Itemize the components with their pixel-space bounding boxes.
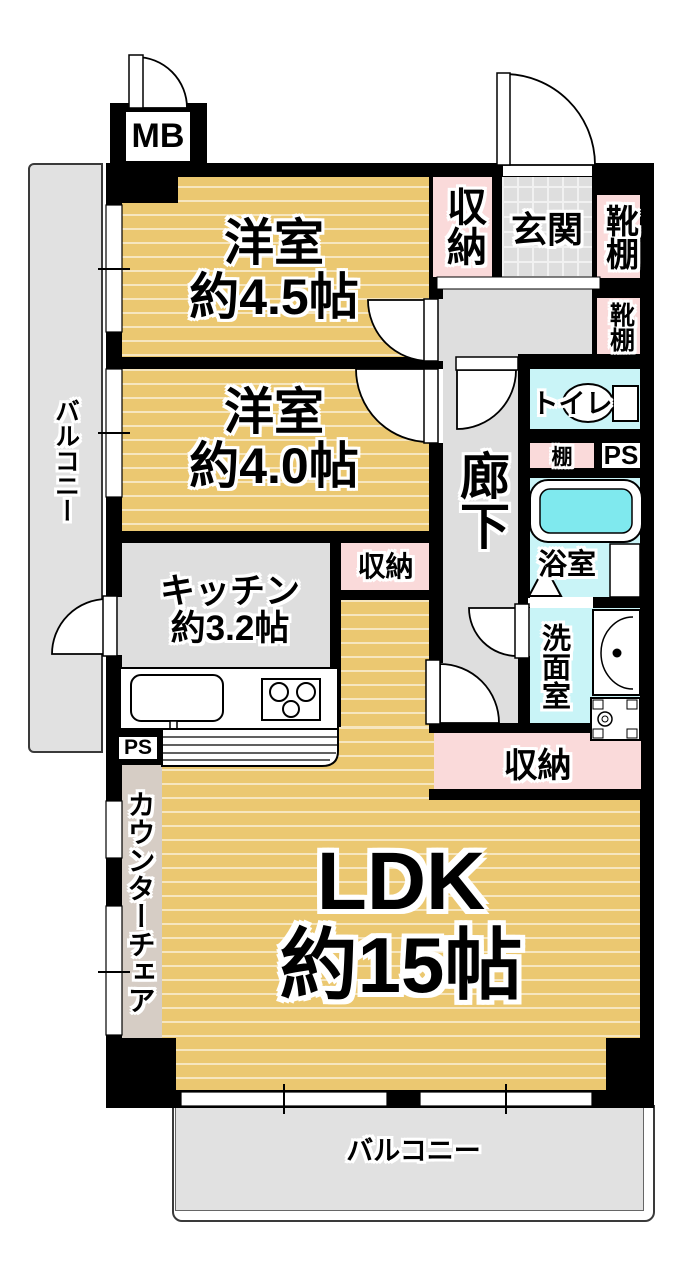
mb-box: MB	[126, 112, 190, 161]
closet-bottom-label: 収納	[434, 743, 641, 781]
washing-machine	[591, 698, 640, 740]
balcony-bottom-label: バルコニー	[172, 1128, 655, 1168]
toilet-door-arc	[457, 370, 516, 429]
ldk-size: 約15帖	[280, 925, 523, 1007]
kitchen-name: キッチン	[160, 574, 300, 611]
floor-plan: MB 洋室 約4.5帖 洋室 約4.0帖 キッチン 約3.2帖 LDK 約15帖…	[0, 0, 682, 1275]
hallway-label: 廊下	[448, 442, 514, 558]
entrance-door-arc	[504, 74, 595, 165]
bedroom2-size: 約4.0帖	[189, 439, 359, 493]
washbasin	[593, 610, 640, 695]
ldk-label: LDK 約15帖	[162, 833, 640, 1013]
washroom-door-arc	[469, 608, 517, 656]
ldk-door-arc	[440, 664, 499, 723]
shoe-shelf-2-label: 靴棚	[599, 300, 641, 353]
bedroom2-label: 洋室 約4.0帖	[118, 383, 430, 495]
balcony-left-label: バルコニー	[40, 383, 90, 538]
toilet-label: トイレ	[531, 386, 613, 416]
closet-top-label: 収納	[435, 180, 491, 272]
ldk-name: LDK	[317, 839, 486, 925]
bedroom1-label: 洋室 約4.5帖	[118, 212, 430, 327]
bedroom2-name: 洋室	[224, 385, 324, 439]
genkan-step	[437, 277, 600, 289]
bedroom1-size: 約4.5帖	[189, 270, 359, 324]
shoe-shelf-1-label: 靴棚	[599, 198, 641, 276]
mb-label: MB	[132, 117, 185, 156]
kitchen-label: キッチン 約3.2帖	[118, 575, 342, 647]
balcony-kitchen-door-arc	[52, 599, 107, 654]
kitchen-size: 約3.2帖	[171, 611, 290, 648]
ps-right-label: PS	[602, 443, 640, 468]
washroom-label: 洗面室	[534, 614, 572, 718]
ps-left-box: PS	[119, 737, 157, 759]
closet-mid-label: 収納	[341, 549, 430, 580]
genkan-label: 玄関	[502, 206, 592, 248]
shelf-label: 棚	[530, 444, 594, 467]
counter-chair-label: カウンターチェア	[117, 768, 162, 1036]
kitchen-sink	[131, 675, 223, 721]
bath-label: 浴室	[530, 546, 604, 578]
ps-left-label: PS	[124, 736, 152, 760]
bedroom1-name: 洋室	[224, 216, 324, 270]
